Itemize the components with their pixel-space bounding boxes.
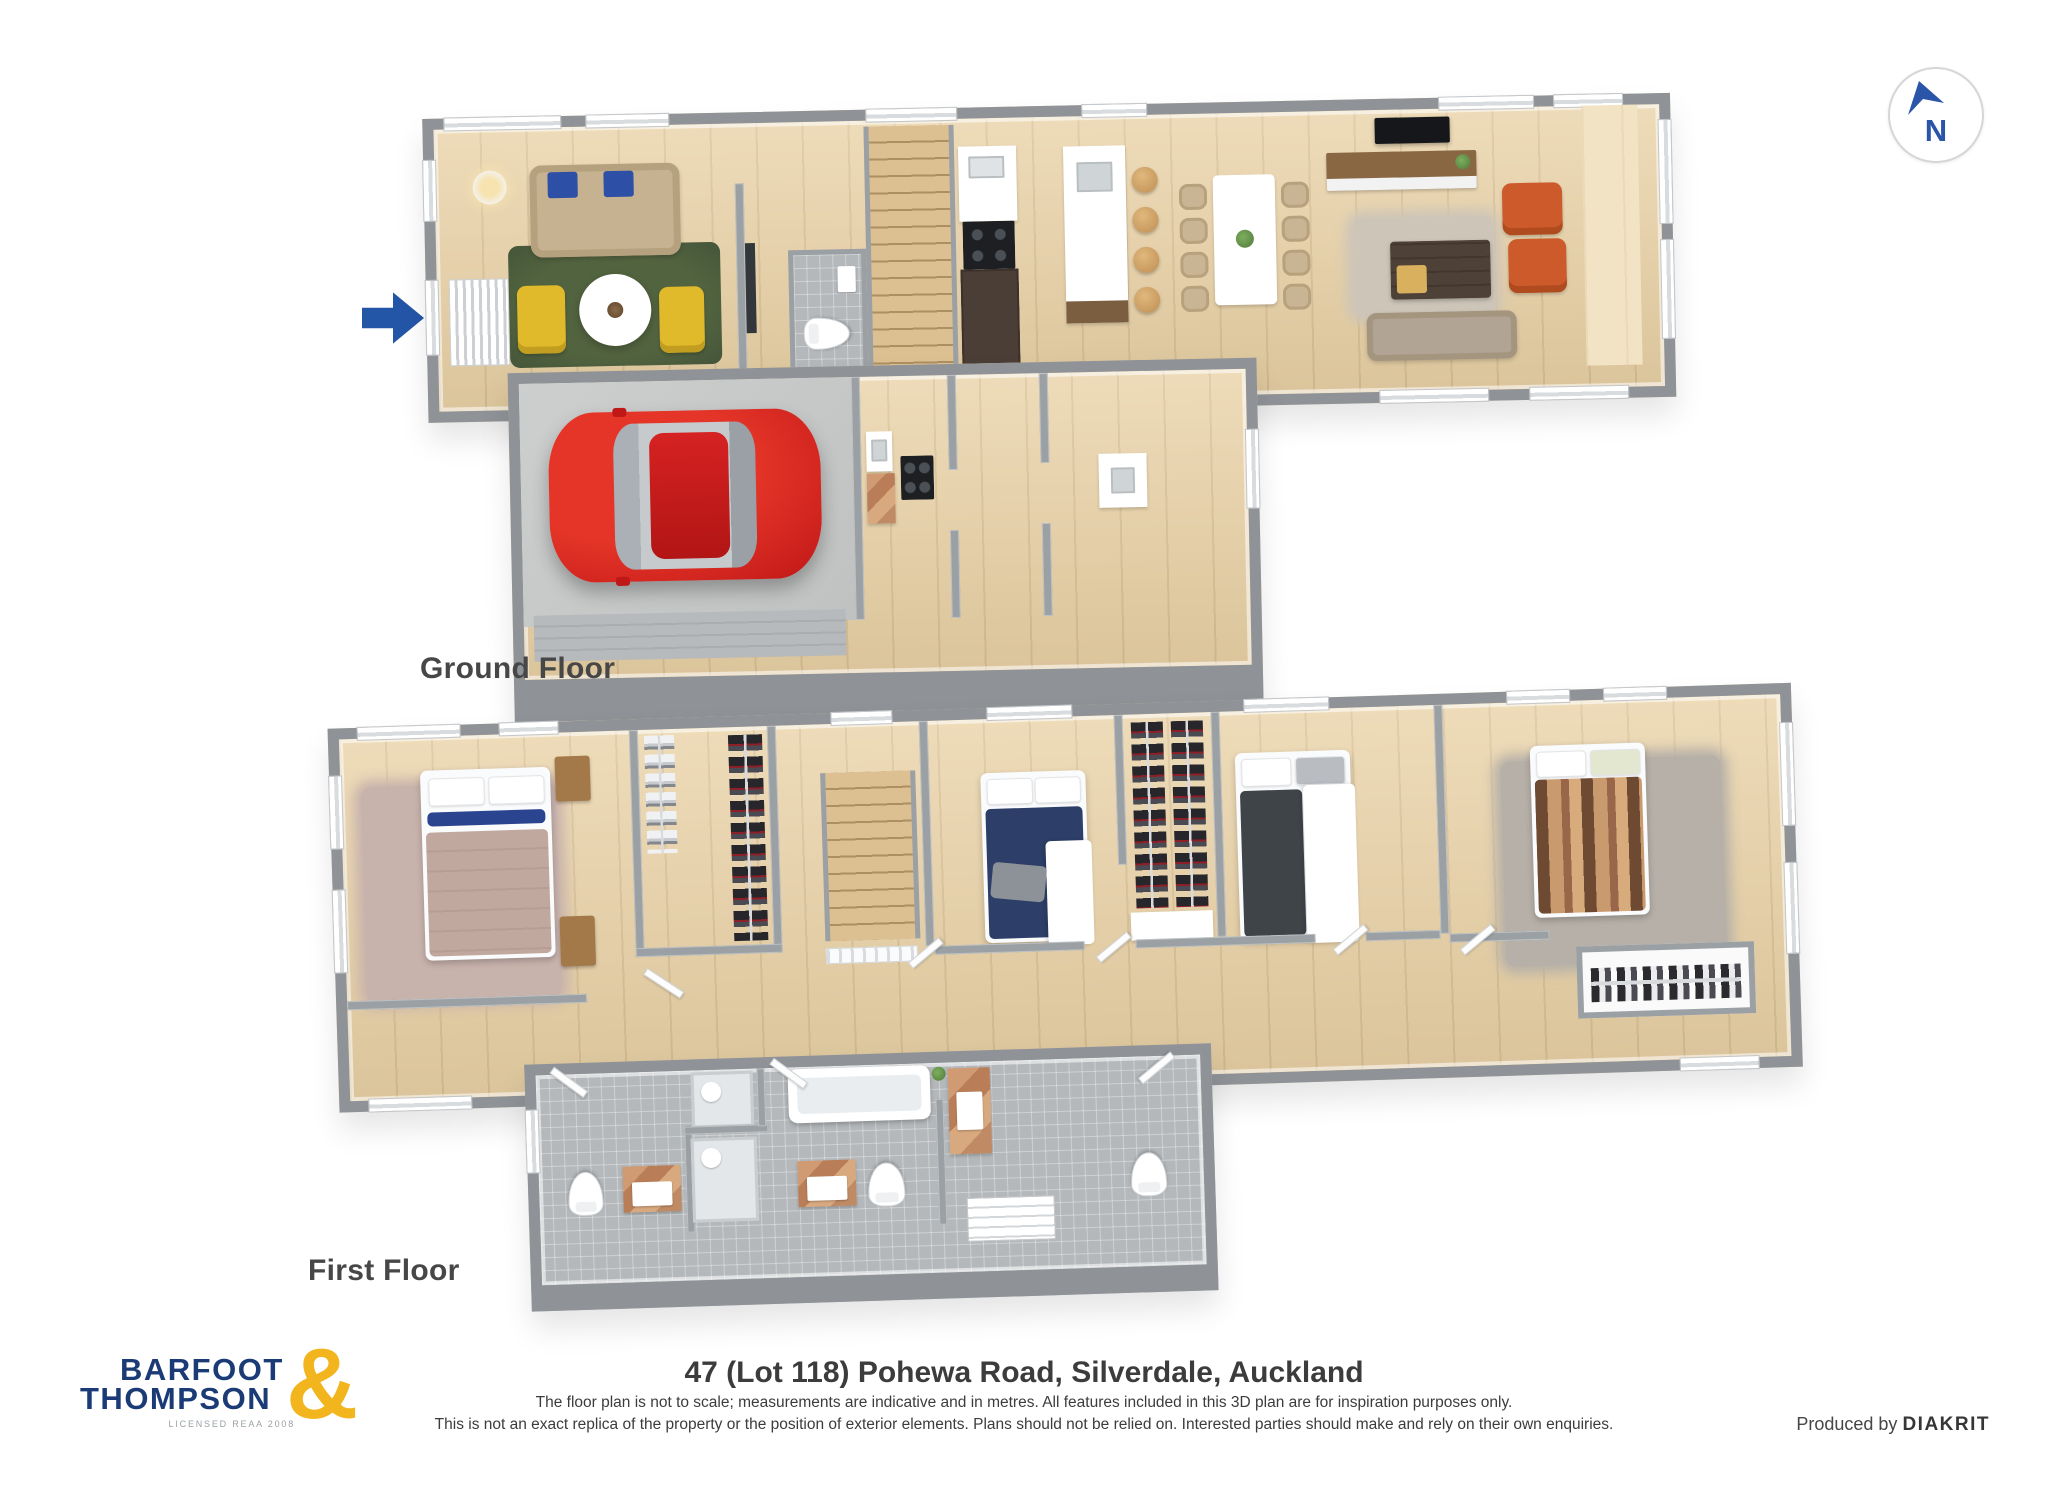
basin	[956, 1091, 983, 1130]
hand-basin	[837, 266, 856, 292]
car-mirror	[616, 577, 630, 586]
first-floor-label: First Floor	[308, 1254, 460, 1288]
toilet	[867, 1162, 905, 1207]
wall	[684, 1124, 768, 1135]
first-floor-bathroom-strip	[524, 1043, 1218, 1311]
master-bed	[420, 767, 556, 961]
duvet-fold	[1303, 784, 1360, 944]
disclaimer-line-2: This is not an exact replica of the prop…	[0, 1416, 2048, 1434]
armchair-orange	[1502, 182, 1563, 235]
armchair-yellow	[659, 286, 705, 353]
laundry-sink	[1109, 465, 1138, 496]
window	[1506, 689, 1570, 705]
window	[422, 160, 437, 222]
scullery-counter	[866, 431, 893, 472]
entry-privacy-screen	[449, 278, 511, 366]
bar-stool	[1132, 207, 1159, 234]
window	[1603, 686, 1667, 702]
pillow	[1536, 750, 1587, 778]
window	[498, 721, 558, 737]
wall	[935, 1099, 947, 1225]
nightstand	[560, 915, 597, 966]
window	[1379, 388, 1489, 404]
window	[425, 280, 441, 356]
door	[643, 968, 684, 999]
garage-strip	[508, 358, 1264, 723]
armchair-orange	[1508, 238, 1567, 293]
kitchen-island	[1063, 145, 1129, 323]
dining-chair	[1181, 286, 1210, 313]
window	[328, 775, 344, 849]
wall	[947, 375, 958, 470]
producer-brand: DIAKRIT	[1902, 1414, 1990, 1435]
duvet-fold	[1045, 840, 1094, 945]
blue-cushion	[603, 171, 634, 198]
wall	[1210, 712, 1226, 937]
toilet	[803, 317, 850, 350]
wall	[1039, 373, 1050, 463]
wall	[919, 721, 935, 946]
car-roof	[648, 432, 729, 559]
window-bay-floor	[1581, 105, 1642, 366]
wardrobe-rack	[1171, 720, 1209, 907]
window	[1657, 119, 1673, 224]
striped-blanket	[1535, 777, 1646, 914]
bar-stool	[1131, 167, 1158, 194]
door	[1096, 931, 1132, 963]
wardrobe-rack	[1131, 722, 1169, 909]
basin	[807, 1176, 848, 1201]
wall	[629, 730, 645, 955]
island-sink	[1074, 160, 1115, 195]
door	[1138, 1051, 1175, 1084]
blanket	[1240, 789, 1307, 937]
dining-chair	[1179, 184, 1208, 211]
car-mirror	[613, 408, 627, 417]
scullery-cooktop	[900, 455, 934, 500]
floor-lamp	[472, 170, 507, 205]
bedroom3-bed	[1235, 750, 1356, 942]
dining-chair	[1180, 252, 1209, 279]
kitchen-counter	[958, 146, 1018, 222]
wardrobe-rack	[728, 734, 768, 941]
wardrobe-cabinet	[1131, 910, 1214, 941]
shower	[690, 1071, 754, 1129]
fridge	[966, 154, 1007, 181]
window	[1779, 722, 1796, 826]
toilet	[568, 1171, 604, 1216]
pillow	[1590, 749, 1641, 777]
wall	[1042, 523, 1053, 616]
wall	[935, 941, 1085, 955]
dining-chair	[1283, 283, 1312, 310]
bathtub	[787, 1065, 931, 1123]
window	[1660, 239, 1676, 339]
tv-cabinet	[1326, 150, 1477, 191]
shower	[691, 1137, 760, 1223]
dining-table	[1213, 174, 1278, 305]
dining-chair	[1179, 218, 1208, 245]
window	[1081, 103, 1147, 118]
wall	[1433, 705, 1449, 934]
toilet	[1130, 1152, 1167, 1197]
table-plant	[1236, 230, 1254, 248]
gold-tray	[1396, 265, 1427, 294]
floor-plan-page: N	[0, 0, 2048, 1494]
compass-north-label: N	[1890, 113, 1982, 149]
dining-chair	[1282, 249, 1311, 276]
lounge-sofa	[529, 163, 681, 258]
stairs	[820, 770, 920, 941]
vanity	[947, 1067, 992, 1154]
window	[1680, 1055, 1760, 1072]
bed-runner	[427, 809, 545, 827]
kitchen-tall-cabinets	[960, 269, 1020, 377]
bar-stool	[1133, 247, 1160, 274]
plant	[1455, 154, 1470, 169]
tv-cabinet-shelf	[1327, 176, 1477, 191]
plant	[931, 1067, 945, 1081]
wardrobe-rack	[644, 735, 678, 854]
door	[549, 1067, 588, 1098]
first-floor-plan	[313, 677, 1800, 1298]
vanity	[622, 1165, 681, 1213]
window	[525, 1109, 541, 1173]
linen-closet	[1576, 941, 1756, 1019]
produced-by: Produced by DIAKRIT	[1796, 1414, 1990, 1436]
bedroom2-bed	[980, 770, 1090, 943]
window	[830, 710, 892, 726]
hall-media-panel	[745, 243, 757, 333]
bar-stool	[1134, 287, 1161, 314]
table-decor	[607, 302, 623, 318]
vanity	[797, 1159, 856, 1207]
wall	[1365, 930, 1440, 941]
stair-landing-steps	[967, 1195, 1056, 1242]
scullery-sink	[869, 437, 890, 463]
cooktop	[962, 221, 1015, 270]
coffee-table	[1390, 240, 1491, 300]
property-address: 47 (Lot 118) Pohewa Road, Silverdale, Au…	[0, 1356, 2048, 1390]
window	[1243, 696, 1329, 713]
pillow	[986, 778, 1033, 805]
window	[443, 115, 561, 131]
pillow	[1241, 758, 1292, 788]
window	[1438, 95, 1534, 111]
laundry-bench	[1098, 453, 1147, 508]
window	[368, 1095, 472, 1112]
wall	[767, 726, 783, 951]
armchair-yellow	[517, 285, 566, 354]
scullery-bench	[867, 473, 896, 524]
entry-arrow-icon	[362, 286, 424, 350]
nightstand	[555, 756, 591, 802]
window	[1245, 429, 1261, 509]
window	[1783, 862, 1800, 954]
window	[865, 107, 957, 123]
pillow	[1295, 756, 1346, 786]
island-base	[1066, 300, 1128, 323]
produced-by-prefix: Produced by	[1796, 1414, 1897, 1434]
stairs	[863, 125, 958, 371]
dining-chair	[1281, 181, 1310, 208]
compass: N	[1888, 67, 1984, 163]
window	[585, 113, 669, 129]
window	[356, 724, 460, 741]
pillow	[488, 775, 545, 805]
powder-room	[788, 249, 869, 373]
stair-balustrade	[826, 945, 918, 964]
window	[1529, 385, 1629, 401]
bedroom4-bed	[1530, 742, 1650, 918]
blanket	[426, 829, 552, 957]
blue-cushion	[547, 172, 578, 199]
wall	[756, 1068, 766, 1126]
wall	[1113, 715, 1127, 865]
ground-floor-label: Ground Floor	[420, 652, 615, 686]
disclaimer-line-1: The floor plan is not to scale; measurem…	[0, 1394, 2048, 1412]
family-sofa	[1366, 310, 1517, 361]
tv	[1374, 116, 1450, 144]
window	[332, 889, 349, 973]
window	[986, 704, 1072, 721]
dining-chair	[1281, 215, 1310, 242]
pillow	[428, 777, 485, 807]
throw	[990, 862, 1047, 903]
ground-floor-plan	[414, 91, 1676, 687]
wall	[636, 944, 783, 958]
wall	[950, 530, 961, 618]
red-car	[547, 408, 823, 584]
closet-rack	[1591, 964, 1742, 1003]
basin	[632, 1181, 673, 1206]
pillow	[1034, 776, 1081, 803]
